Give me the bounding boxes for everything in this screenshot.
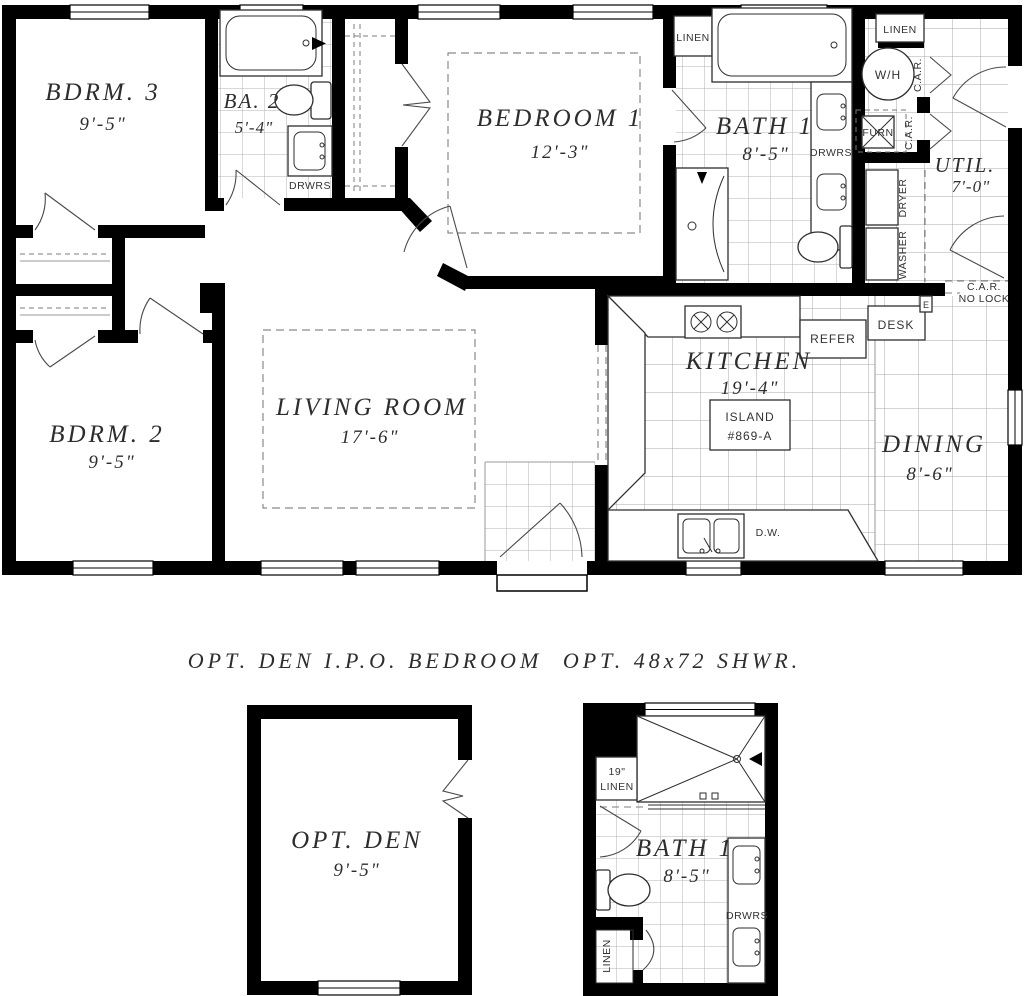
kitchen-counter-left [608, 296, 645, 510]
opt-drwrs-label: DRWRS [726, 910, 768, 922]
bath1-drwrs-label: DRWRS [810, 147, 852, 159]
bifold-closet-doors [402, 64, 430, 146]
car-no-lock-label-2: NO LOCK [959, 293, 1010, 305]
floor-plan-drawing: C.A.R. NO LOCK [0, 0, 1024, 996]
util-label: UTIL. [935, 153, 996, 177]
option-shower-plan: OPT. 48x72 SHWR. 19" LINEN [563, 648, 801, 996]
car-no-lock-label-1: C.A.R. [967, 281, 1001, 293]
opt-linen19-size: 19" [609, 766, 626, 778]
entry-tile-floor [485, 462, 595, 561]
option-den-plan: OPT. DEN I.P.O. BEDROOM OPT. DEN 9'-5" [188, 648, 543, 995]
kitchen-label: KITCHEN [685, 348, 813, 375]
bdrm3-label: BDRM. 3 [45, 79, 160, 106]
bath1-label: BATH 1 [716, 113, 814, 140]
ba2-bathtub [220, 10, 322, 76]
opt-bath1-dim: 8'-5" [663, 866, 710, 887]
entry-stoop [497, 575, 587, 591]
exterior-wall-left [2, 5, 16, 575]
option-shower-title: OPT. 48x72 SHWR. [563, 648, 801, 673]
living-room-label: LIVING ROOM [275, 394, 468, 421]
bath1-toilet-tank [840, 226, 852, 268]
washer-label: WASHER [897, 231, 909, 280]
ba2-toilet-tank [311, 82, 331, 119]
den-wall-break [443, 760, 468, 818]
bdrm2-door-swing [140, 298, 203, 334]
car-label-1: C.A.R. [912, 58, 924, 92]
opt-linen-label: LINEN [601, 939, 613, 972]
car-label-2: C.A.R. [903, 116, 915, 150]
bdrm2-closet-door-swing [35, 336, 95, 367]
option-den-title: OPT. DEN I.P.O. BEDROOM [188, 648, 543, 673]
dryer-box [866, 170, 898, 225]
main-floor-plan: C.A.R. NO LOCK [2, 5, 1022, 591]
opt-linen19-label: LINEN [600, 781, 633, 793]
dryer-label: DRYER [897, 178, 909, 217]
floor-plan-page: C.A.R. NO LOCK [0, 0, 1024, 996]
exterior-wall-top [2, 5, 1022, 19]
bdrm2-label: BDRM. 2 [49, 421, 164, 448]
island-label-1: ISLAND [725, 410, 774, 424]
opt-bath1-label: BATH 1 [636, 835, 734, 862]
dining-label: DINING [881, 431, 986, 458]
kitchen-dim: 19'-4" [721, 378, 780, 399]
ba2-label: BA. 2 [224, 89, 281, 113]
bath1-linen-label: LINEN [676, 32, 709, 44]
bedroom1-dim: 12'-3" [531, 142, 590, 163]
kitchen-sink [678, 514, 744, 558]
bath1-dim: 8'-5" [742, 144, 789, 165]
bdrm3-door-swing [35, 193, 95, 230]
opt-linen19-cabinet [596, 757, 637, 800]
util-linen-label: LINEN [883, 24, 916, 36]
island-label-2: #869-A [728, 429, 773, 443]
furnace-label: FURN [862, 127, 893, 139]
refer-label: REFER [810, 332, 856, 346]
epanel-label: E [923, 300, 929, 310]
bath1-toilet-bowl [798, 232, 838, 262]
bdrm2-dim: 9'-5" [88, 452, 135, 473]
stove [685, 306, 741, 338]
kitchen-pass-through [598, 345, 606, 465]
util-dim: 7'-0" [952, 177, 990, 196]
entry-door-opening [497, 561, 587, 575]
living-room-dim: 17'-6" [341, 427, 400, 448]
ba2-dim: 5'-4" [235, 118, 273, 137]
bdrm3-dim: 9'-5" [79, 114, 126, 135]
washer-box [866, 228, 898, 280]
dishwasher-label: D.W. [756, 527, 781, 539]
opt-toilet-bowl [608, 874, 650, 906]
water-heater-label: W/H [875, 68, 901, 82]
opt-den-label: OPT. DEN [291, 827, 423, 854]
bedroom1-label: BEDROOM 1 [477, 105, 644, 132]
dining-dim: 8'-6" [906, 464, 953, 485]
opt-den-dim: 9'-5" [333, 860, 380, 881]
util-exterior-door-opening [1008, 66, 1022, 128]
ba2-toilet-bowl [275, 85, 313, 115]
ba2-drwrs-label: DRWRS [289, 180, 331, 192]
desk-label: DESK [878, 318, 915, 332]
